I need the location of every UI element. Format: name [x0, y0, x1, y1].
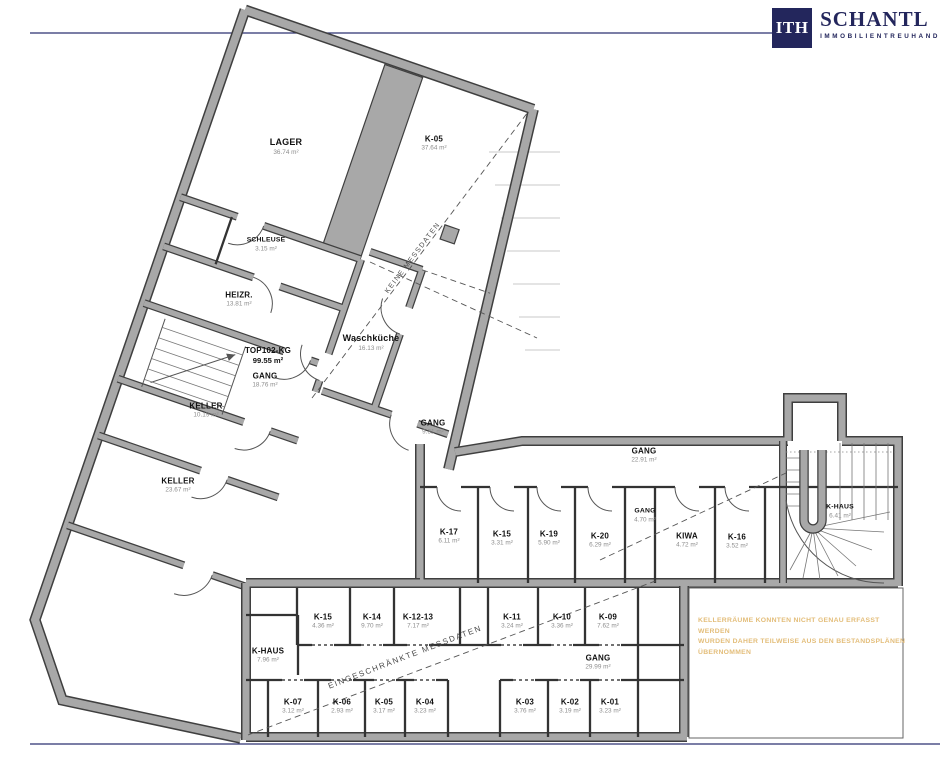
company-logo: ITH SCHANTL IMMOBILIENTREUHAND	[772, 8, 940, 48]
right-wing-walls	[420, 398, 898, 586]
logo-brand-text: SCHANTL	[820, 8, 940, 31]
pillar	[440, 225, 459, 244]
courtyard-outline	[689, 588, 903, 738]
floorplan-drawing	[0, 0, 950, 758]
stair-k-haus	[786, 443, 898, 583]
logo-ith-mark: ITH	[772, 8, 812, 48]
bottom-wing-walls	[246, 583, 687, 740]
floorplan-page: LAGER36.74 m² K-0537.64 m² SCHLEUSE3.15 …	[0, 0, 950, 758]
logo-subtitle-text: IMMOBILIENTREUHAND	[820, 33, 940, 40]
shaft-wall	[322, 65, 422, 260]
